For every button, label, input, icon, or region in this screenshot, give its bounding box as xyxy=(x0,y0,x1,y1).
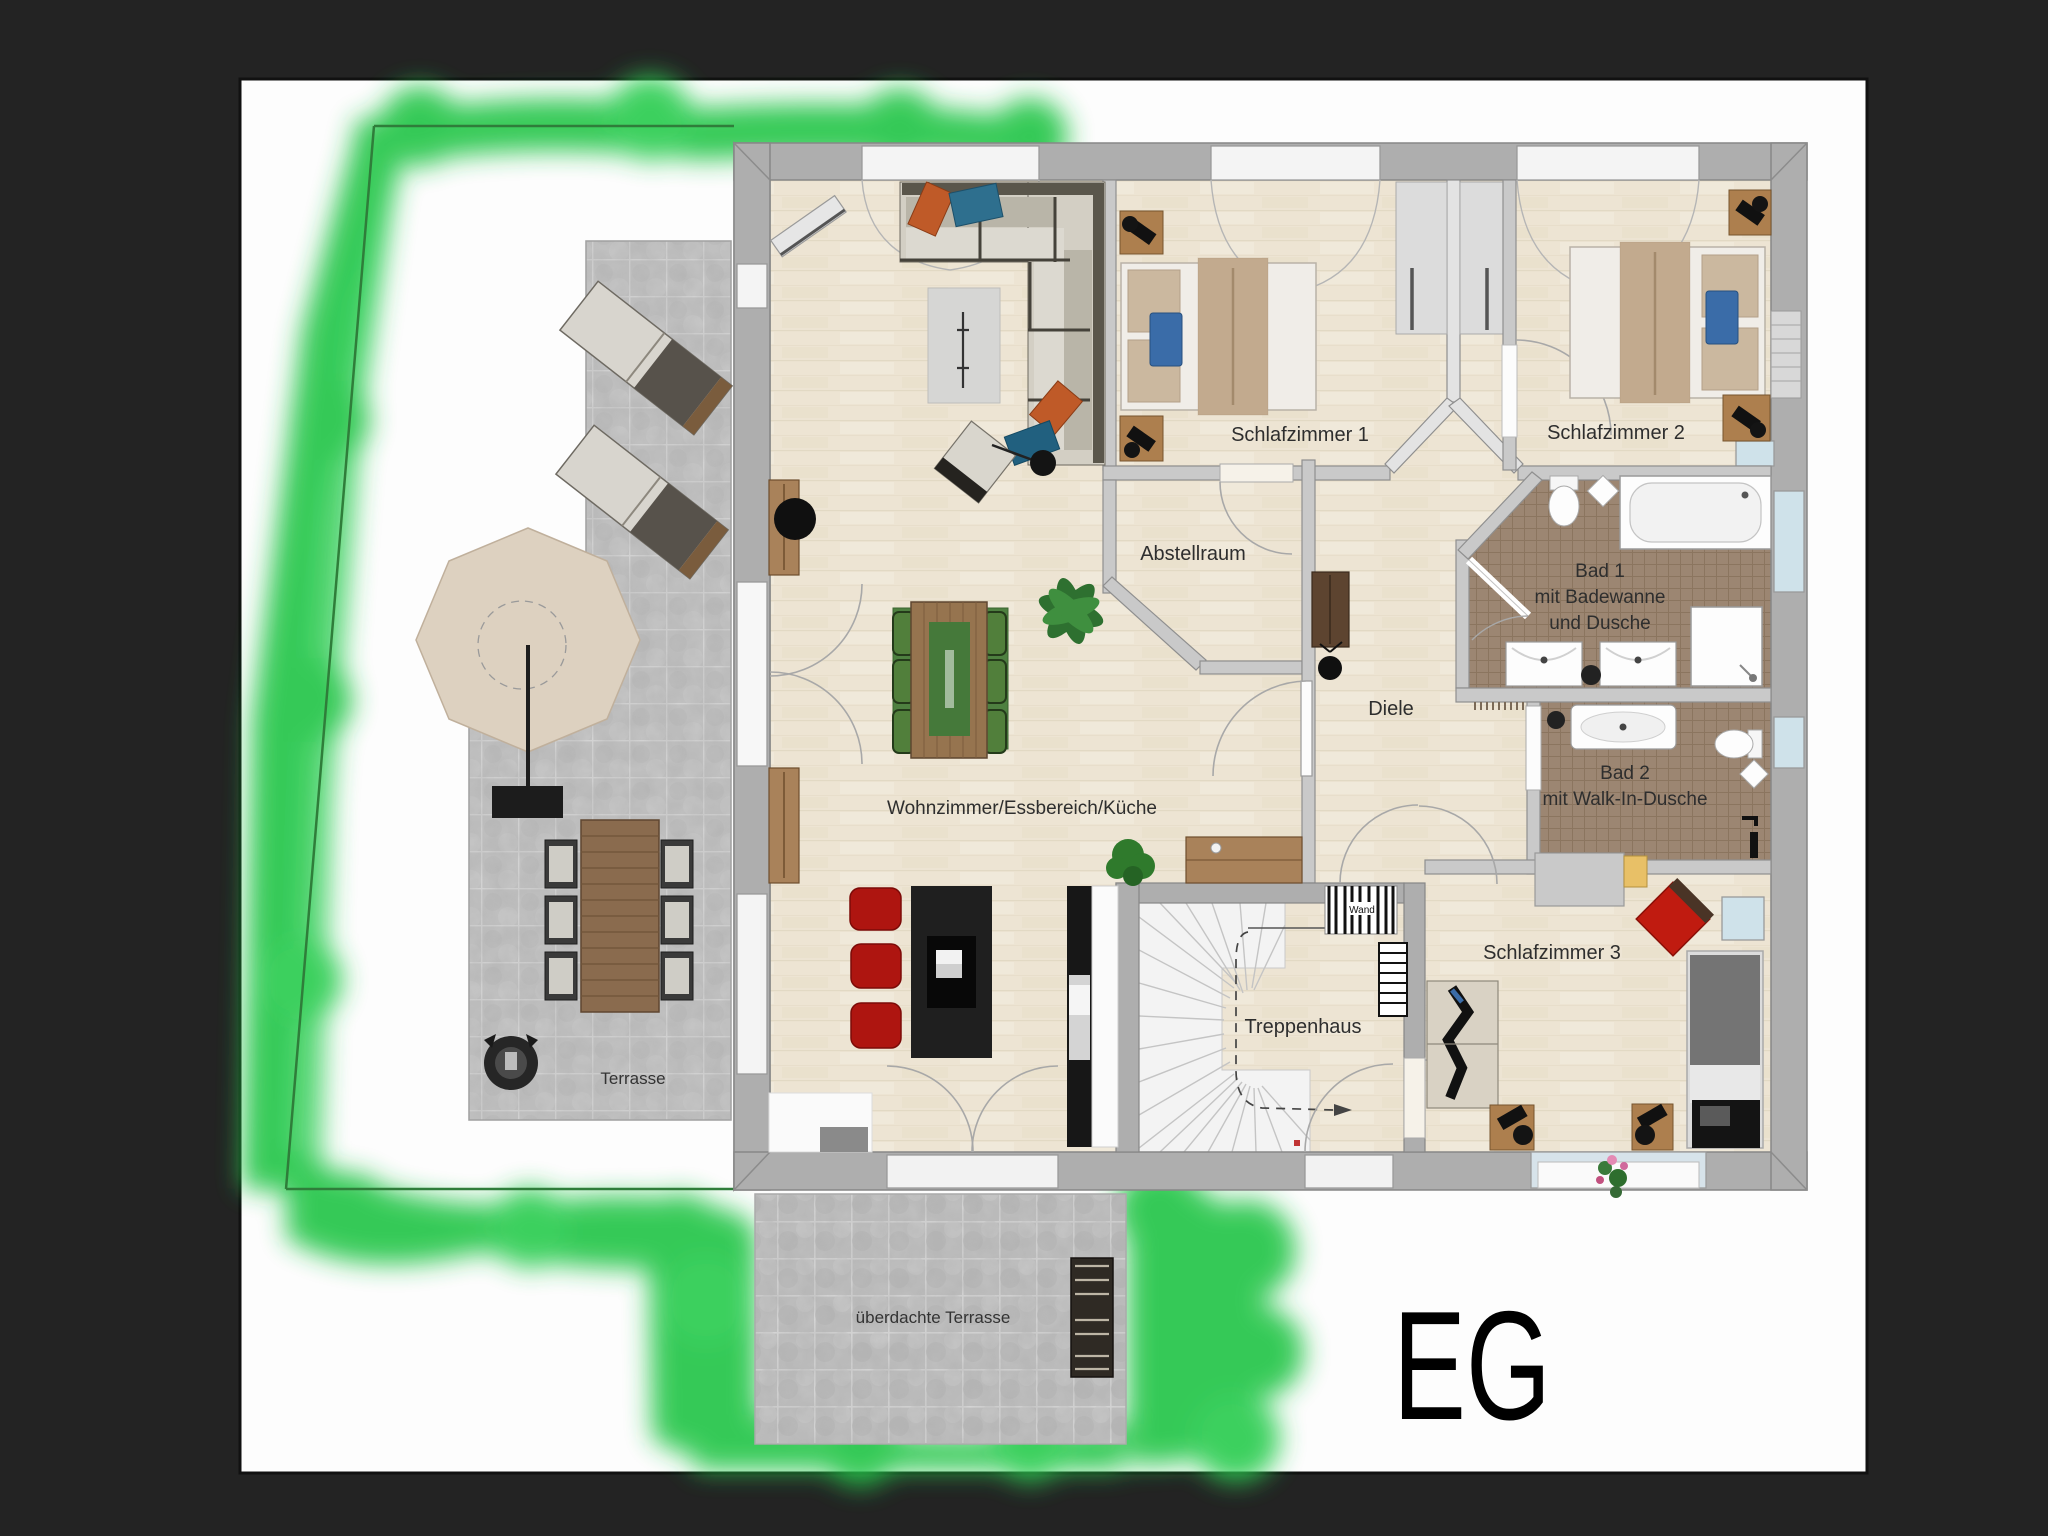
svg-text:Schlafzimmer 1: Schlafzimmer 1 xyxy=(1231,424,1369,446)
svg-text:überdachte Terrasse: überdachte Terrasse xyxy=(856,1308,1011,1327)
svg-text:Wand: Wand xyxy=(1349,905,1375,916)
svg-text:Diele: Diele xyxy=(1368,698,1414,720)
svg-text:Treppenhaus: Treppenhaus xyxy=(1244,1016,1361,1038)
svg-text:EG: EG xyxy=(1393,1279,1551,1452)
svg-text:Bad 1: Bad 1 xyxy=(1575,561,1625,582)
svg-text:Terrasse: Terrasse xyxy=(600,1069,665,1088)
svg-text:mit Walk-In-Dusche: mit Walk-In-Dusche xyxy=(1542,789,1707,810)
svg-text:Wohnzimmer/Essbereich/Küche: Wohnzimmer/Essbereich/Küche xyxy=(887,798,1157,819)
svg-text:und Dusche: und Dusche xyxy=(1549,613,1650,634)
svg-text:mit Badewanne: mit Badewanne xyxy=(1535,587,1666,608)
svg-text:Schlafzimmer 3: Schlafzimmer 3 xyxy=(1483,942,1621,964)
svg-text:Schlafzimmer 2: Schlafzimmer 2 xyxy=(1547,422,1685,444)
svg-text:Abstellraum: Abstellraum xyxy=(1140,543,1246,565)
svg-text:Bad 2: Bad 2 xyxy=(1600,763,1650,784)
